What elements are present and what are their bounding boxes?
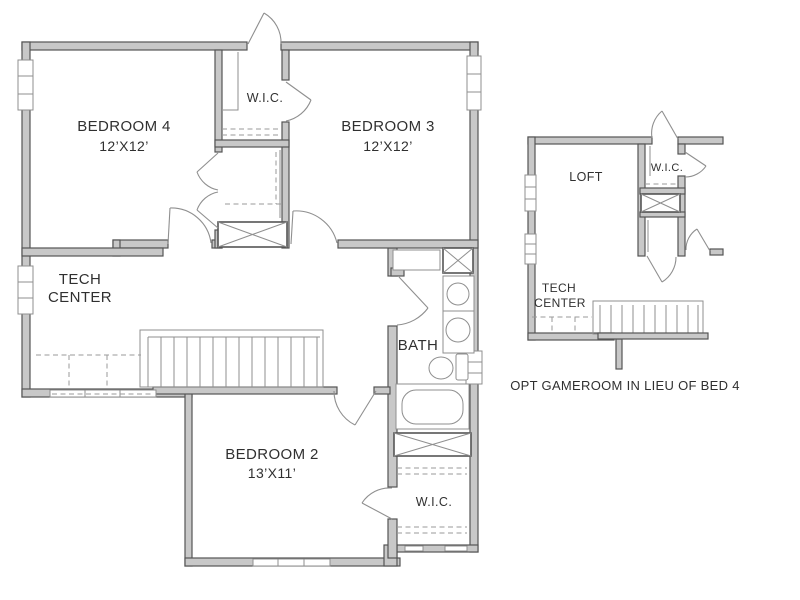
main-floor-plan: BEDROOM 4 12’X12’ W.I.C. BEDROOM 3 12’X1…	[18, 13, 482, 566]
inset-closet-x-box	[641, 194, 680, 212]
inset-staircase	[593, 301, 708, 339]
inset-wic-top-door	[652, 111, 678, 139]
wic-top-label: W.I.C.	[247, 91, 283, 105]
bath-closet-x	[394, 433, 471, 456]
wic-bottom-door	[362, 488, 392, 519]
inset-closet-bottom-door	[647, 256, 676, 282]
window	[467, 56, 481, 110]
bedroom3-door	[291, 211, 337, 244]
wic-shelf-line	[223, 52, 238, 110]
inset-floor-plan: LOFT W.I.C. TECH CENTER OPT GAMEROOM IN …	[510, 111, 740, 393]
window	[405, 546, 423, 551]
toilet	[429, 354, 468, 380]
inset-wic-label: W.I.C.	[651, 162, 683, 174]
window	[18, 60, 33, 110]
bedroom2-door	[334, 391, 376, 425]
linen-closet-x	[443, 248, 473, 273]
inset-loft-label: LOFT	[569, 170, 603, 184]
staircase	[140, 330, 323, 387]
closet-double-door-top	[197, 153, 218, 190]
bedroom4-label: BEDROOM 4	[77, 118, 171, 135]
bathtub	[396, 384, 469, 429]
floor-plan-page: BEDROOM 4 12’X12’ W.I.C. BEDROOM 3 12’X1…	[0, 0, 800, 600]
floor-plan-drawing: BEDROOM 4 12’X12’ W.I.C. BEDROOM 3 12’X1…	[0, 0, 800, 600]
inset-hall-door	[686, 229, 710, 251]
tech-center-label-line1: TECH	[59, 271, 101, 288]
bedroom4-door	[168, 208, 211, 244]
inset-wic-side-door	[685, 152, 706, 177]
inset-room-labels: LOFT W.I.C. TECH CENTER	[534, 162, 683, 310]
inset-tech-label-line1: TECH	[542, 281, 576, 295]
bedroom2-dims: 13’X11’	[248, 465, 296, 481]
wic-top-side-door	[286, 82, 311, 121]
tech-desk-dash	[36, 355, 154, 394]
inset-tech-label-line2: CENTER	[534, 296, 586, 310]
bath-door	[397, 277, 428, 325]
window	[525, 175, 536, 211]
inset-caption: OPT GAMEROOM IN LIEU OF BED 4	[510, 378, 740, 393]
bedroom3-label: BEDROOM 3	[341, 118, 435, 135]
bath-label: BATH	[398, 337, 439, 354]
window	[445, 546, 467, 551]
closet-double-door-bottom	[197, 192, 218, 228]
window	[18, 266, 33, 314]
tech-center-label-line2: CENTER	[48, 289, 112, 306]
inset-tech-desk-dash	[532, 317, 592, 333]
window	[525, 234, 536, 264]
hall-closet-x	[218, 222, 287, 247]
bath-niche	[393, 250, 440, 270]
window	[253, 559, 330, 566]
bedroom2-label: BEDROOM 2	[225, 446, 319, 463]
wic-top-door	[248, 13, 281, 44]
wic-bottom-label: W.I.C.	[416, 495, 452, 509]
double-vanity	[443, 276, 474, 353]
bedroom3-dims: 12’X12’	[363, 138, 413, 154]
bedroom4-dims: 12’X12’	[99, 138, 149, 154]
